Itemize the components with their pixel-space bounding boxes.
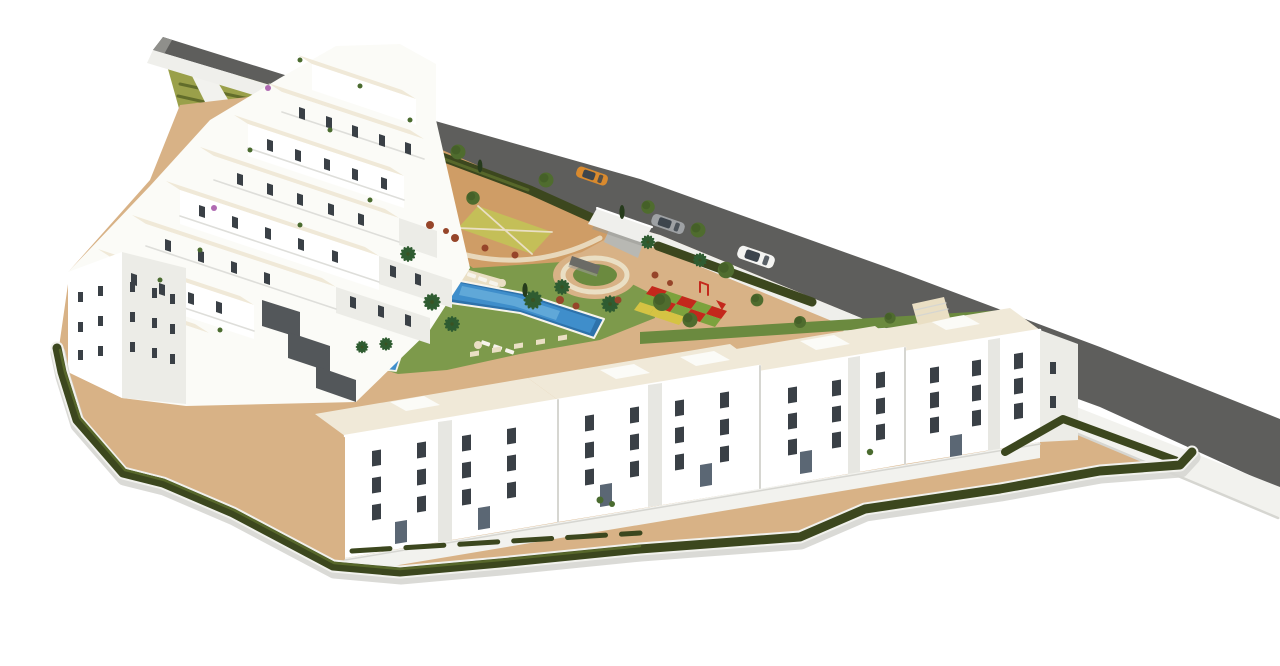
window	[165, 239, 171, 252]
shrub	[443, 228, 449, 234]
window	[170, 354, 175, 364]
window	[930, 367, 939, 384]
window	[930, 392, 939, 409]
olive-tree	[641, 200, 655, 214]
window	[78, 322, 83, 332]
window	[972, 360, 981, 377]
shrub	[426, 221, 434, 229]
window	[98, 286, 103, 296]
shrub	[482, 245, 489, 252]
cypress-tree	[522, 283, 527, 297]
cypress-tree	[478, 160, 483, 173]
potted-plant	[867, 449, 873, 455]
window	[405, 142, 411, 155]
window	[237, 173, 243, 186]
window	[78, 350, 83, 360]
window	[630, 407, 639, 424]
window	[788, 439, 797, 456]
window	[232, 216, 238, 229]
window	[372, 504, 381, 521]
window	[788, 387, 797, 404]
window	[720, 446, 729, 463]
window	[350, 296, 356, 309]
window	[152, 288, 157, 298]
parasol	[474, 341, 482, 349]
window	[295, 149, 301, 162]
window	[299, 107, 305, 120]
window	[352, 168, 358, 181]
plant	[368, 198, 373, 203]
potted-plant	[609, 501, 615, 507]
olive-tree	[884, 312, 895, 323]
window	[417, 496, 426, 513]
window	[170, 324, 175, 334]
olive-tree	[539, 173, 554, 188]
window	[675, 427, 684, 444]
bougainvillea	[211, 205, 217, 211]
window	[1014, 378, 1023, 395]
plant	[218, 328, 223, 333]
shrub	[667, 280, 673, 286]
cypress-tree	[619, 205, 624, 219]
balcony-recess	[648, 383, 662, 507]
window	[328, 203, 334, 216]
window	[98, 316, 103, 326]
window	[832, 406, 841, 423]
window	[131, 273, 137, 286]
window	[352, 125, 358, 138]
plant	[408, 118, 413, 123]
window	[267, 183, 273, 196]
window	[1014, 353, 1023, 370]
window	[720, 419, 729, 436]
window	[972, 385, 981, 402]
plant	[158, 278, 163, 283]
balcony-recess	[848, 356, 860, 475]
window	[379, 134, 385, 147]
window	[98, 346, 103, 356]
window	[297, 193, 303, 206]
olive-tree	[466, 191, 480, 205]
window	[675, 454, 684, 471]
bougainvillea	[265, 85, 271, 91]
window	[231, 261, 237, 274]
window	[372, 450, 381, 467]
olive-tree	[794, 316, 806, 328]
plant	[248, 148, 253, 153]
entrance-door	[395, 520, 407, 544]
plant	[298, 58, 303, 63]
window	[876, 372, 885, 389]
window	[417, 469, 426, 486]
window	[417, 442, 426, 459]
olive-tree	[718, 262, 735, 279]
window	[630, 461, 639, 478]
olive-tree	[451, 145, 466, 160]
window	[832, 432, 841, 449]
window	[507, 428, 516, 445]
window	[326, 116, 332, 129]
window	[267, 139, 273, 152]
window	[1014, 403, 1023, 420]
window	[876, 424, 885, 441]
entrance-door	[950, 434, 962, 458]
window	[507, 482, 516, 499]
window	[630, 434, 639, 451]
window	[130, 312, 135, 322]
plant	[198, 248, 203, 253]
shrub	[451, 234, 459, 242]
window	[720, 392, 729, 409]
window	[462, 435, 471, 452]
entrance-door	[700, 463, 712, 487]
window	[462, 489, 471, 506]
balcony-recess	[988, 338, 1000, 454]
window	[199, 205, 205, 218]
shrub	[556, 296, 564, 304]
window	[930, 417, 939, 434]
window	[216, 301, 222, 314]
window	[585, 469, 594, 486]
window	[876, 398, 885, 415]
olive-tree	[683, 313, 698, 328]
shrub	[615, 297, 622, 304]
plant	[358, 84, 363, 89]
window	[462, 462, 471, 479]
window	[170, 294, 175, 304]
window	[324, 158, 330, 171]
window	[378, 305, 384, 318]
window	[415, 273, 421, 286]
window	[332, 250, 338, 263]
window	[390, 265, 396, 278]
olive-tree	[691, 223, 706, 238]
site-plan-render: Aerial 3D render of residential complex	[0, 0, 1280, 666]
window	[381, 177, 387, 190]
window	[832, 380, 841, 397]
window	[507, 455, 516, 472]
window	[152, 348, 157, 358]
window	[585, 442, 594, 459]
window	[298, 238, 304, 251]
shrub	[652, 272, 659, 279]
window	[585, 415, 594, 432]
window	[188, 292, 194, 305]
parasol	[498, 279, 506, 287]
render-stage: Aerial 3D render of residential complex …	[0, 0, 1280, 666]
window	[130, 342, 135, 352]
entrance-door	[478, 506, 490, 530]
window	[1050, 396, 1056, 408]
shrub	[512, 252, 519, 259]
window	[788, 413, 797, 430]
window	[372, 477, 381, 494]
shrub	[573, 303, 580, 310]
window	[675, 400, 684, 417]
window	[78, 292, 83, 302]
balcony-recess	[438, 420, 452, 543]
window	[405, 314, 411, 327]
window	[1050, 362, 1056, 374]
olive-tree	[751, 294, 764, 307]
plant	[328, 128, 333, 133]
plant	[298, 223, 303, 228]
window	[358, 213, 364, 226]
window	[972, 410, 981, 427]
window	[265, 227, 271, 240]
olive-tree	[653, 293, 671, 311]
window	[264, 272, 270, 285]
potted-plant	[597, 497, 604, 504]
window	[152, 318, 157, 328]
window	[159, 283, 165, 296]
entrance-door	[800, 450, 812, 474]
